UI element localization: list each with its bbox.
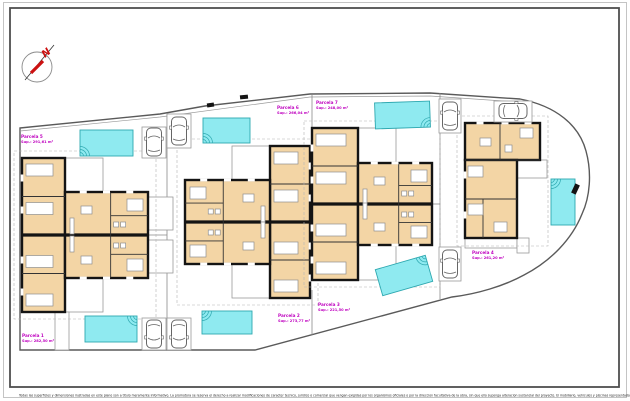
- furniture: [374, 223, 385, 231]
- window: [412, 162, 419, 165]
- gate-mark: [240, 95, 248, 100]
- terrace: [358, 128, 396, 163]
- parcel-name: Parcela 2: [278, 313, 300, 318]
- gate-mark: [207, 103, 214, 108]
- car-mirror: [145, 137, 147, 140]
- furniture: [215, 209, 220, 214]
- furniture: [70, 236, 74, 252]
- furniture: [208, 209, 213, 214]
- window: [248, 179, 255, 182]
- terrace: [65, 278, 103, 312]
- parcel-name: Parcela 6: [277, 105, 299, 110]
- terrace: [465, 238, 517, 248]
- furniture: [114, 222, 119, 227]
- pool-water: [85, 316, 137, 342]
- window: [21, 257, 24, 264]
- furniture: [274, 280, 298, 292]
- car-mirror: [170, 336, 172, 339]
- car-mirror: [170, 126, 172, 129]
- car-mirror: [441, 259, 443, 262]
- window: [464, 212, 467, 219]
- furniture: [26, 256, 53, 268]
- window: [126, 277, 133, 280]
- window: [392, 162, 399, 165]
- furniture: [243, 194, 254, 202]
- furniture: [127, 259, 143, 271]
- window: [311, 145, 314, 152]
- parcel-area: Sup.: 291,61 m²: [21, 140, 54, 144]
- furniture: [208, 230, 213, 235]
- car-mirror: [457, 259, 459, 262]
- pool: [202, 311, 252, 334]
- furniture: [274, 190, 298, 202]
- window: [21, 175, 24, 182]
- car: [145, 320, 164, 348]
- window: [392, 244, 399, 247]
- parcel-area: Sup.: 273,77 m²: [278, 319, 311, 323]
- window: [103, 277, 110, 280]
- furniture: [409, 191, 414, 196]
- parcel-area: Sup.: 266,04 m²: [277, 111, 310, 115]
- terrace: [517, 160, 547, 178]
- parcel-name: Parcela 1: [22, 333, 44, 338]
- furniture: [190, 245, 206, 257]
- parcel-name: Parcela 5: [21, 134, 43, 139]
- furniture: [26, 164, 53, 176]
- site-plan-canvas: N Parcela 1Sup.: 282,50 m²Parcela 2Sup.:…: [0, 0, 630, 401]
- window: [311, 257, 314, 264]
- furniture: [363, 189, 367, 205]
- car-mirror: [161, 336, 163, 339]
- parcel-name: Parcela 4: [472, 250, 494, 255]
- parcel-area: Sup.: 221,50 m²: [318, 308, 351, 312]
- furniture: [81, 256, 92, 264]
- furniture: [316, 134, 346, 146]
- window: [21, 289, 24, 296]
- car-mirror: [515, 102, 518, 104]
- car: [441, 250, 460, 278]
- car-mirror: [457, 111, 459, 114]
- furniture: [480, 138, 491, 146]
- furniture: [520, 128, 533, 138]
- window: [21, 207, 24, 214]
- window: [371, 244, 378, 247]
- window: [412, 244, 419, 247]
- window: [224, 179, 231, 182]
- parcel-area: Sup.: 261,20 m²: [472, 256, 505, 260]
- terrace: [65, 158, 103, 192]
- window: [464, 172, 467, 179]
- north-arrow: N: [22, 45, 54, 82]
- furniture: [121, 243, 126, 248]
- window: [248, 263, 255, 266]
- car-mirror: [186, 336, 188, 339]
- pool: [85, 316, 137, 342]
- pool: [203, 118, 250, 143]
- terrace: [517, 238, 529, 253]
- furniture: [409, 212, 414, 217]
- car-mirror: [186, 126, 188, 129]
- window: [311, 225, 314, 232]
- car-mirror: [161, 137, 163, 140]
- car: [441, 102, 460, 130]
- car-mirror: [145, 336, 147, 339]
- window: [477, 122, 484, 125]
- car-mirror: [515, 118, 518, 120]
- pool-water: [203, 118, 250, 143]
- furniture: [411, 170, 427, 182]
- furniture: [190, 187, 206, 199]
- window: [311, 177, 314, 184]
- furniture: [127, 199, 143, 211]
- furniture: [316, 224, 346, 236]
- furniture: [26, 203, 53, 215]
- window: [200, 263, 207, 266]
- parcel-area: Sup.: 248,00 m²: [316, 106, 349, 110]
- furniture: [468, 204, 483, 215]
- pool: [551, 179, 575, 225]
- furniture: [402, 212, 407, 217]
- car: [170, 117, 189, 145]
- furniture: [274, 242, 298, 254]
- north-arrow-pointer: [31, 61, 43, 73]
- parcel-name: Parcela 7: [316, 100, 338, 105]
- car-mirror: [441, 111, 443, 114]
- furniture: [411, 226, 427, 238]
- furniture: [261, 222, 265, 238]
- car: [145, 128, 164, 156]
- furniture: [505, 145, 512, 152]
- terrace: [232, 146, 270, 180]
- furniture: [243, 242, 254, 250]
- pool-water: [375, 101, 431, 129]
- furniture: [261, 206, 265, 222]
- furniture: [374, 177, 385, 185]
- furniture: [81, 206, 92, 214]
- pool-water: [551, 179, 575, 225]
- furniture: [316, 172, 346, 184]
- window: [80, 277, 87, 280]
- pool: [80, 130, 133, 156]
- window: [126, 191, 133, 194]
- car: [170, 320, 189, 348]
- parcel-name: Parcela 3: [318, 302, 340, 307]
- terrace: [148, 197, 173, 230]
- window: [200, 179, 207, 182]
- furniture: [274, 152, 298, 164]
- furniture: [215, 230, 220, 235]
- pool-water: [80, 130, 133, 156]
- furniture: [494, 222, 507, 232]
- furniture: [70, 218, 74, 234]
- window: [80, 191, 87, 194]
- furniture: [121, 222, 126, 227]
- car: [499, 102, 527, 121]
- terrace: [55, 312, 69, 350]
- furniture: [363, 203, 367, 219]
- window: [371, 162, 378, 165]
- furniture: [26, 294, 53, 306]
- terrace: [232, 264, 270, 298]
- furniture: [316, 262, 346, 274]
- furniture: [468, 166, 483, 177]
- parcel-area: Sup.: 282,50 m²: [22, 339, 55, 343]
- window: [103, 191, 110, 194]
- terrace: [148, 240, 173, 273]
- pool: [375, 101, 431, 129]
- furniture: [402, 191, 407, 196]
- window: [224, 263, 231, 266]
- pool-water: [202, 311, 252, 334]
- footer-disclaimer: Todas las superficies y dimensiones ilus…: [18, 394, 630, 398]
- furniture: [114, 243, 119, 248]
